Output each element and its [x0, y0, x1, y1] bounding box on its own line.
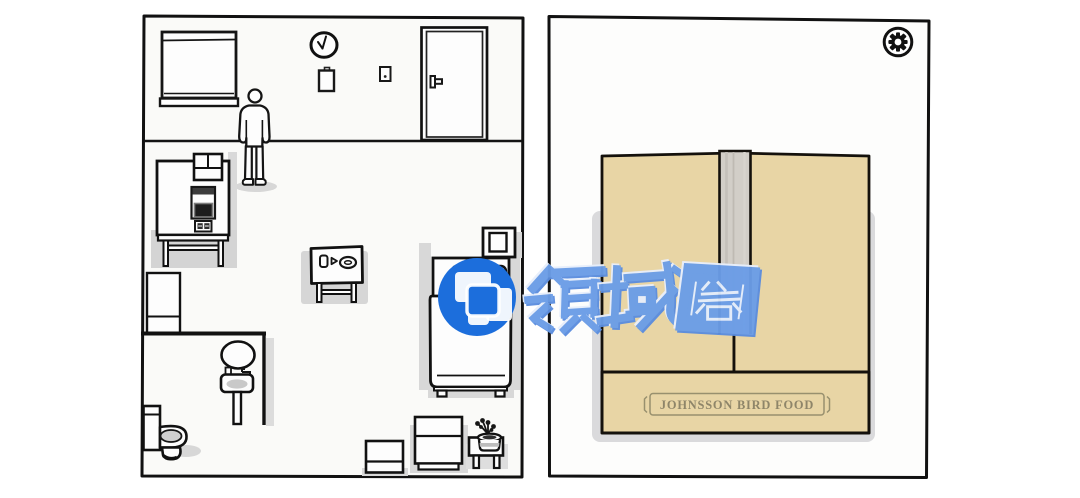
- svg-text:JOHNSSON BIRD FOOD: JOHNSSON BIRD FOOD: [660, 398, 814, 412]
